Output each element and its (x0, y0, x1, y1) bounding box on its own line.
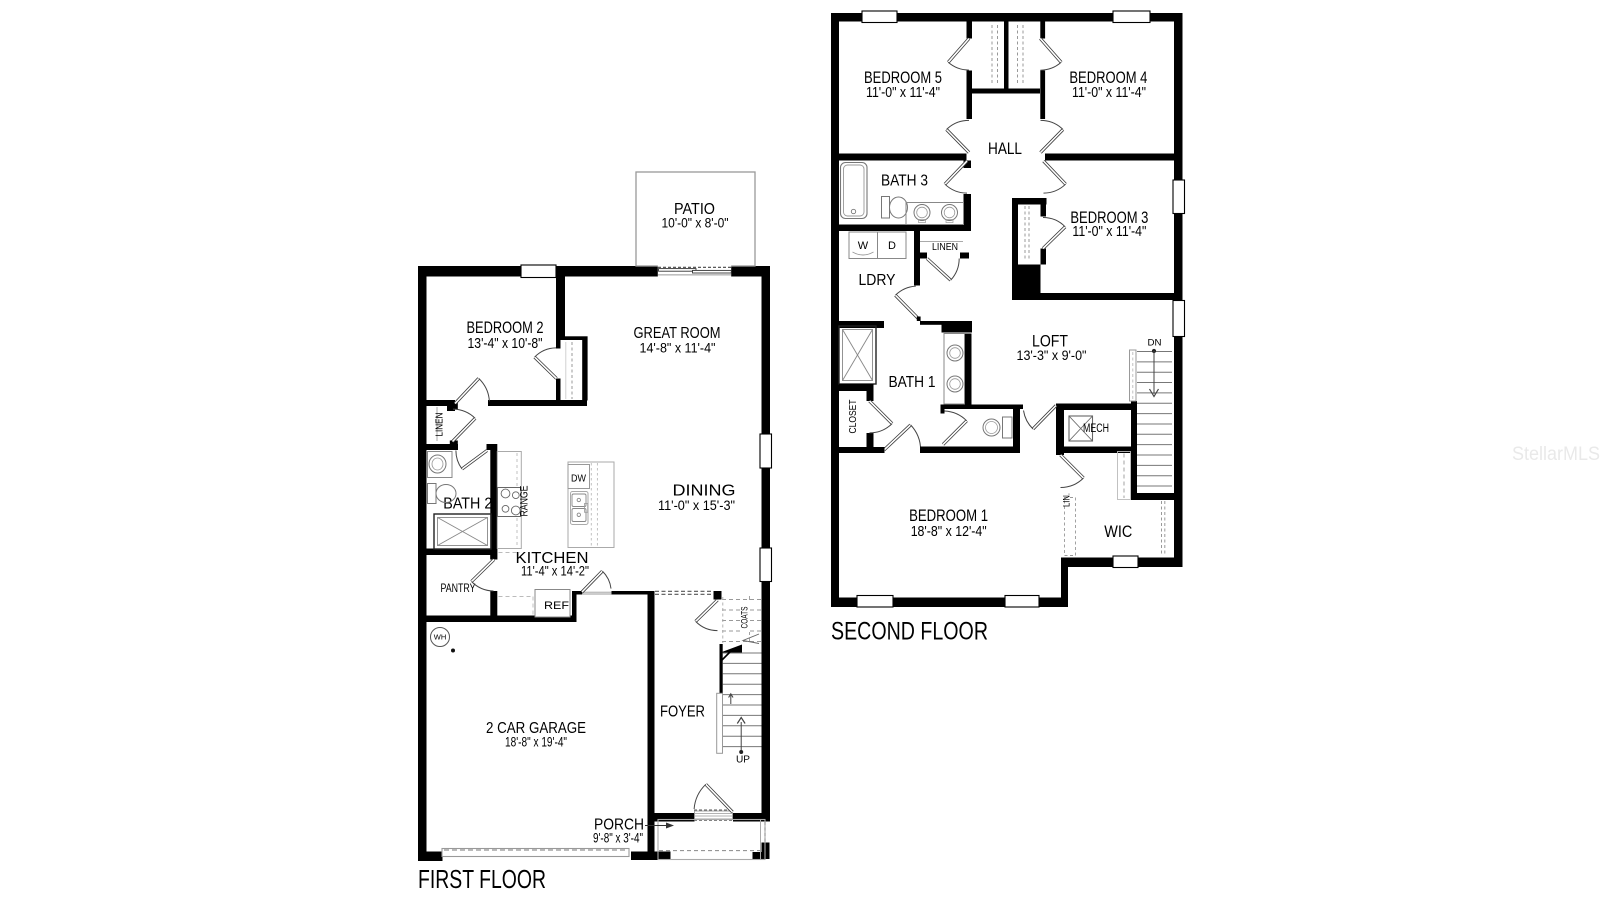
svg-text:MECH: MECH (1083, 423, 1109, 435)
svg-text:FIRST FLOOR: FIRST FLOOR (418, 866, 546, 894)
svg-text:LIN.: LIN. (1062, 493, 1072, 507)
svg-text:13'-3" x 9'-0": 13'-3" x 9'-0" (1017, 347, 1087, 363)
svg-text:13'-4" x 10'-8": 13'-4" x 10'-8" (468, 336, 543, 352)
svg-text:10'-0" x 8'-0": 10'-0" x 8'-0" (662, 216, 729, 231)
svg-text:CLOSET: CLOSET (847, 399, 859, 433)
svg-text:11'-0" x 15'-3": 11'-0" x 15'-3" (658, 497, 735, 513)
svg-text:StellarMLS: StellarMLS (1512, 443, 1600, 465)
svg-text:PANTRY: PANTRY (441, 581, 476, 595)
svg-text:DW: DW (571, 473, 586, 485)
svg-text:18'-8" x 12'-4": 18'-8" x 12'-4" (911, 524, 987, 540)
svg-text:LINEN: LINEN (932, 241, 958, 253)
svg-text:W: W (858, 240, 869, 252)
svg-text:BATH 3: BATH 3 (881, 173, 928, 190)
svg-text:FOYER: FOYER (660, 704, 705, 721)
svg-text:D: D (888, 240, 896, 252)
svg-text:18'-8" x 19'-4": 18'-8" x 19'-4" (505, 735, 567, 750)
svg-text:11'-0" x 11'-4": 11'-0" x 11'-4" (1072, 224, 1146, 240)
svg-text:11'-4" x 14'-2": 11'-4" x 14'-2" (521, 564, 589, 579)
svg-text:9'-8" x 3'-4": 9'-8" x 3'-4" (593, 831, 643, 846)
svg-text:HALL: HALL (988, 140, 1022, 158)
svg-text:11'-0" x 11'-4": 11'-0" x 11'-4" (866, 85, 940, 101)
svg-text:11'-0" x 11'-4": 11'-0" x 11'-4" (1072, 85, 1146, 101)
svg-text:RANGE: RANGE (519, 486, 531, 517)
svg-text:BEDROOM 1: BEDROOM 1 (909, 507, 988, 525)
svg-text:WH: WH (434, 633, 447, 642)
svg-text:COATS: COATS (740, 607, 751, 629)
svg-text:BATH 2: BATH 2 (443, 496, 492, 513)
svg-text:UP: UP (736, 755, 750, 766)
svg-text:14'-8" x 11'-4": 14'-8" x 11'-4" (640, 340, 716, 356)
svg-text:LINEN: LINEN (435, 413, 446, 437)
svg-text:DN: DN (1148, 338, 1162, 349)
svg-text:BATH 1: BATH 1 (889, 374, 936, 391)
svg-text:BEDROOM 2: BEDROOM 2 (467, 319, 544, 337)
svg-text:WIC: WIC (1104, 523, 1132, 541)
svg-text:LDRY: LDRY (859, 272, 896, 289)
svg-text:SECOND FLOOR: SECOND FLOOR (831, 618, 988, 646)
svg-text:REF: REF (544, 600, 569, 612)
